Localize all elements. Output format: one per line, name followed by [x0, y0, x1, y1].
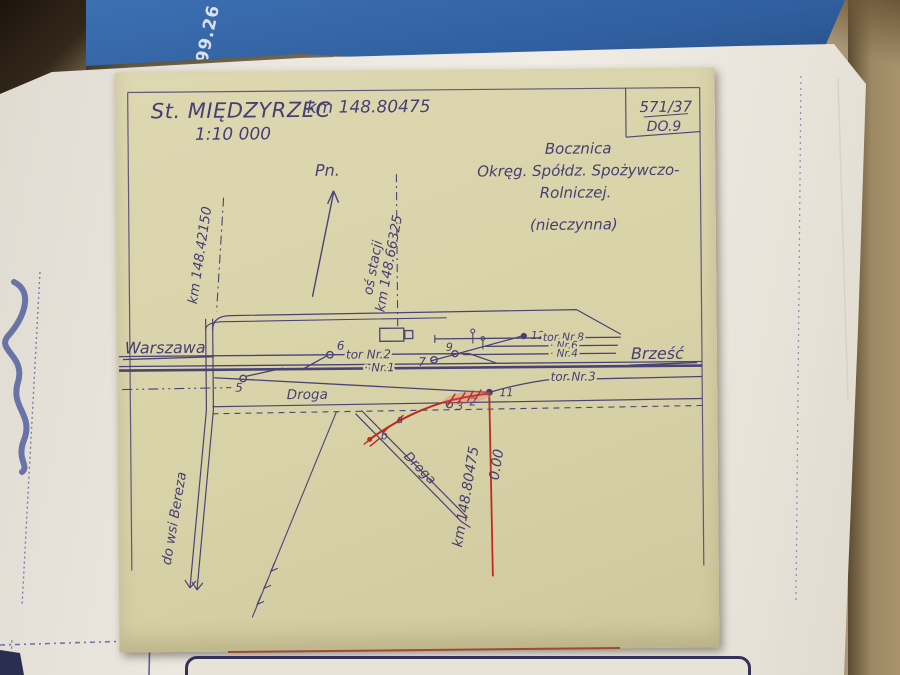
plan-scale: 1:10 000: [195, 124, 271, 145]
road-branch-label: Droga: [400, 449, 438, 488]
note-line-1: Bocznica: [545, 139, 612, 158]
station-plan-sheet: 571/37 DO.9 St. MIĘDZYRZEC km 148.80475 …: [114, 67, 719, 652]
boundary-marks: [122, 387, 338, 619]
red-line-km-label: km 148.80475: [450, 445, 483, 548]
direction-warszawa: Warszawa: [125, 338, 206, 358]
siding-note: Bocznica Okręg. Spółdz. Spożywczo- Rolni…: [477, 139, 680, 235]
track-nr1-label: · Nr.1: [364, 360, 395, 374]
station-plan-drawing: 571/37 DO.9 St. MIĘDZYRZEC km 148.80475 …: [114, 67, 719, 652]
letter-a: a: [396, 413, 403, 426]
switch-12: [521, 333, 527, 339]
switch-9-label: 9: [446, 341, 453, 354]
note-line-3: Rolniczej.: [540, 183, 612, 202]
note-line-2: Okręg. Spółdz. Spożywczo-: [477, 161, 680, 181]
switch-6-label: 6: [337, 339, 345, 353]
road-branch: Droga: [355, 410, 470, 529]
track-nr3: [489, 377, 702, 393]
direction-brzesc: Brześć: [631, 344, 685, 363]
building-symbol: [380, 328, 404, 341]
letter-b: b: [381, 429, 388, 442]
bottom-document-border: [185, 656, 751, 675]
station-name: St. MIĘDZYRZEC: [151, 98, 331, 124]
plan-title: St. MIĘDZYRZEC km 148.80475 1:10 000: [151, 97, 431, 145]
dark-paper-corner: [0, 650, 24, 675]
plan-border: [128, 88, 704, 571]
road-main-label: Droga: [287, 387, 328, 403]
path-with-chevrons: [250, 412, 338, 618]
reference-box: 571/37 DO.9: [626, 88, 700, 138]
signal-symbols: [471, 329, 485, 350]
switch-7-label: 7: [418, 355, 426, 369]
reference-code: DO.9: [647, 119, 682, 135]
km-marker-left-label: km 148.42150: [185, 205, 215, 305]
track-nr8: [435, 337, 621, 339]
note-line-4: (nieczynna): [530, 215, 618, 234]
switch-11-label: 11: [499, 386, 513, 399]
reference-number: 571/37: [639, 98, 692, 116]
red-km-line: [489, 396, 493, 576]
km-marker-left: km 148.42150: [184, 198, 225, 312]
left-handwriting-script: [5, 282, 26, 472]
photo-of-archival-document: 299.26: [0, 0, 900, 675]
right-margin-dotted-rule: [796, 76, 848, 600]
station-km: km 148.80475: [307, 97, 431, 118]
road-to-bereza: do wsi Bereza: [157, 319, 215, 590]
track-nr3-label: tor Nr.3: [551, 369, 596, 383]
north-label: Pn.: [315, 161, 340, 180]
red-siding-markings: a b km 148.80475 0.00: [363, 388, 508, 578]
north-arrow: Pn.: [311, 161, 341, 297]
road-bereza-label: do wsi Bereza: [159, 471, 190, 566]
track-nr4-label: · Nr.4: [550, 348, 578, 360]
track-nr4: [463, 353, 616, 354]
station-axis: oś stacji km 148.66325: [359, 174, 412, 341]
switch-5-label: 5: [235, 381, 243, 395]
